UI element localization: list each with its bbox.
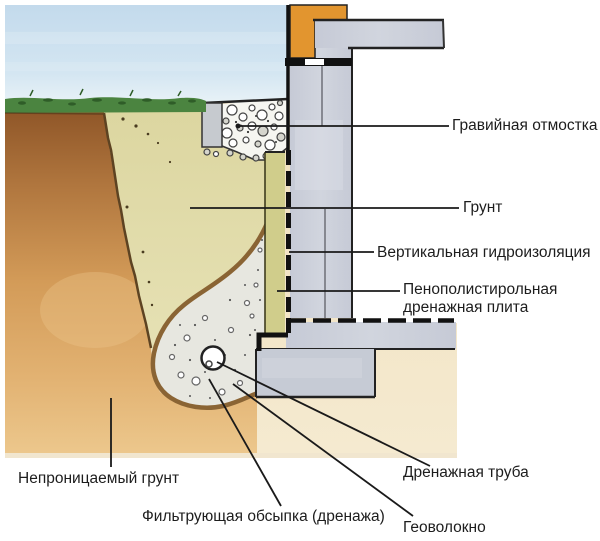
drain-pipe [202, 347, 225, 370]
label-impermeable-soil: Непроницаемый грунт [18, 470, 179, 488]
label-soil: Грунт [463, 199, 502, 217]
label-geotextile: Геоволокно [403, 519, 486, 537]
diagram-canvas [0, 0, 600, 541]
label-drain-pipe: Дренажная труба [403, 464, 529, 482]
label-drainage-plate-line2: дренажная плита [403, 299, 557, 317]
label-vertical-waterproofing: Вертикальная гидроизоляция [377, 244, 591, 262]
drainage-plate [265, 152, 285, 334]
foundation-drainage-diagram: Гравийная отмостка Грунт Вертикальная ги… [0, 0, 600, 541]
foundation-wall [290, 48, 352, 318]
label-filter-bedding: Фильтрующая обсыпка (дренажа) [142, 508, 385, 526]
label-gravel-blind-area: Гравийная отмостка [452, 117, 597, 135]
sky [5, 5, 287, 103]
label-drainage-plate-line1: Пенополистирольная [403, 281, 557, 299]
floor-slab [313, 20, 444, 48]
label-drainage-plate: Пенополистирольная дренажная плита [403, 281, 557, 317]
wall-brick-joint [285, 58, 352, 66]
basement-interior [352, 5, 458, 323]
